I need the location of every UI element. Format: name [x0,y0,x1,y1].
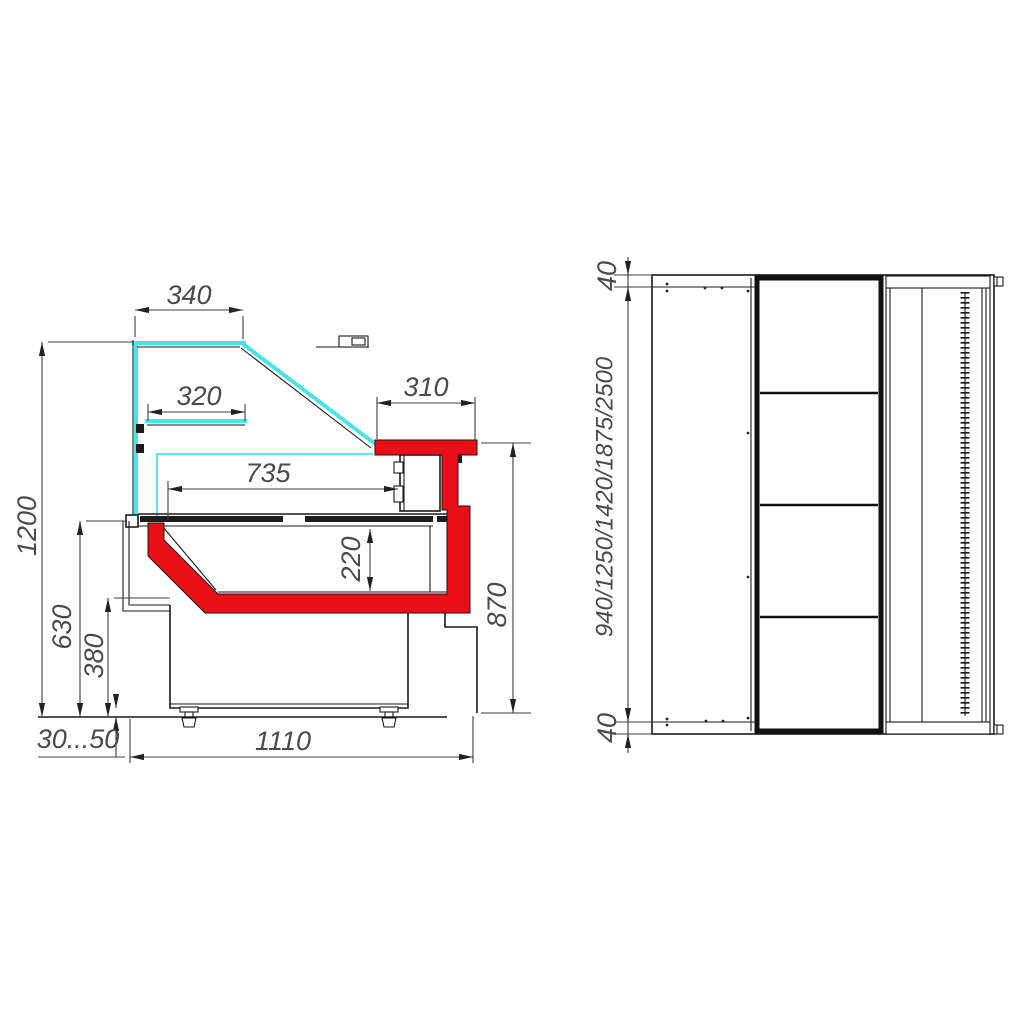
shelf-bracket-lower [136,444,144,453]
dim-735: 735 [168,458,398,519]
top-notch [994,277,1003,286]
dim-label: 1200 [12,496,42,556]
deck-end-bracket [126,515,138,527]
box-hinge-bottom [394,486,403,502]
bottom-end-cap [886,722,990,734]
foot-pad [382,718,396,727]
dim-label: 380 [79,633,109,678]
dim-320: 320 [148,381,245,421]
dim-220: 220 [336,529,370,591]
deck-pan-right [305,516,433,522]
dim-1110: 1110 [130,716,473,763]
dim-label: 340 [166,280,211,310]
foot-flange [180,707,198,712]
dim-30-50: 30...50 [37,694,125,757]
dim-630: 630 [47,521,127,717]
dim-label: 30...50 [37,724,120,754]
deck-pan-left [140,516,283,522]
machinery-box [400,455,440,511]
dim-label: 320 [176,381,221,411]
glass-panels [134,343,374,520]
dim-label: 870 [482,582,512,627]
right-step-panel [445,613,477,713]
dim-1200: 1200 [12,342,133,717]
bottom-notch [994,725,1003,734]
plan-view: 40 40 940/1250/1420/1875/2500 [591,257,1003,753]
front-slope-glass [243,344,374,443]
side-section-view: 340 320 310 735 220 [12,280,531,763]
slope-inner-edge [241,348,371,448]
plan-body [652,275,1003,734]
drawing-page: 340 320 310 735 220 [0,0,1024,1024]
technical-drawing-canvas: 340 320 310 735 220 [0,0,1024,1024]
foot-flange [380,707,398,712]
length-options-label: 940/1250/1420/1875/2500 [591,356,618,637]
top-end-cap [886,276,990,288]
box-hinge-top [394,462,403,473]
shelf-bracket-upper [136,424,144,433]
plinth-outline [170,605,408,708]
dim-310: 310 [377,372,475,440]
dim-label: 1110 [255,726,311,756]
lamp-tube [352,338,365,345]
dim-340: 340 [135,280,243,339]
plan-view-dimensions: 40 40 940/1250/1420/1875/2500 [591,257,652,753]
dim-label: 220 [336,536,366,582]
foot-pad [182,718,196,727]
dim-40-top-label: 40 [592,261,622,291]
dim-label: 630 [47,604,77,649]
dim-870: 870 [481,443,531,713]
dim-label: 735 [245,458,291,488]
dim-40-bottom-label: 40 [592,713,622,743]
dim-380: 380 [79,598,170,717]
dim-label: 310 [403,372,448,402]
